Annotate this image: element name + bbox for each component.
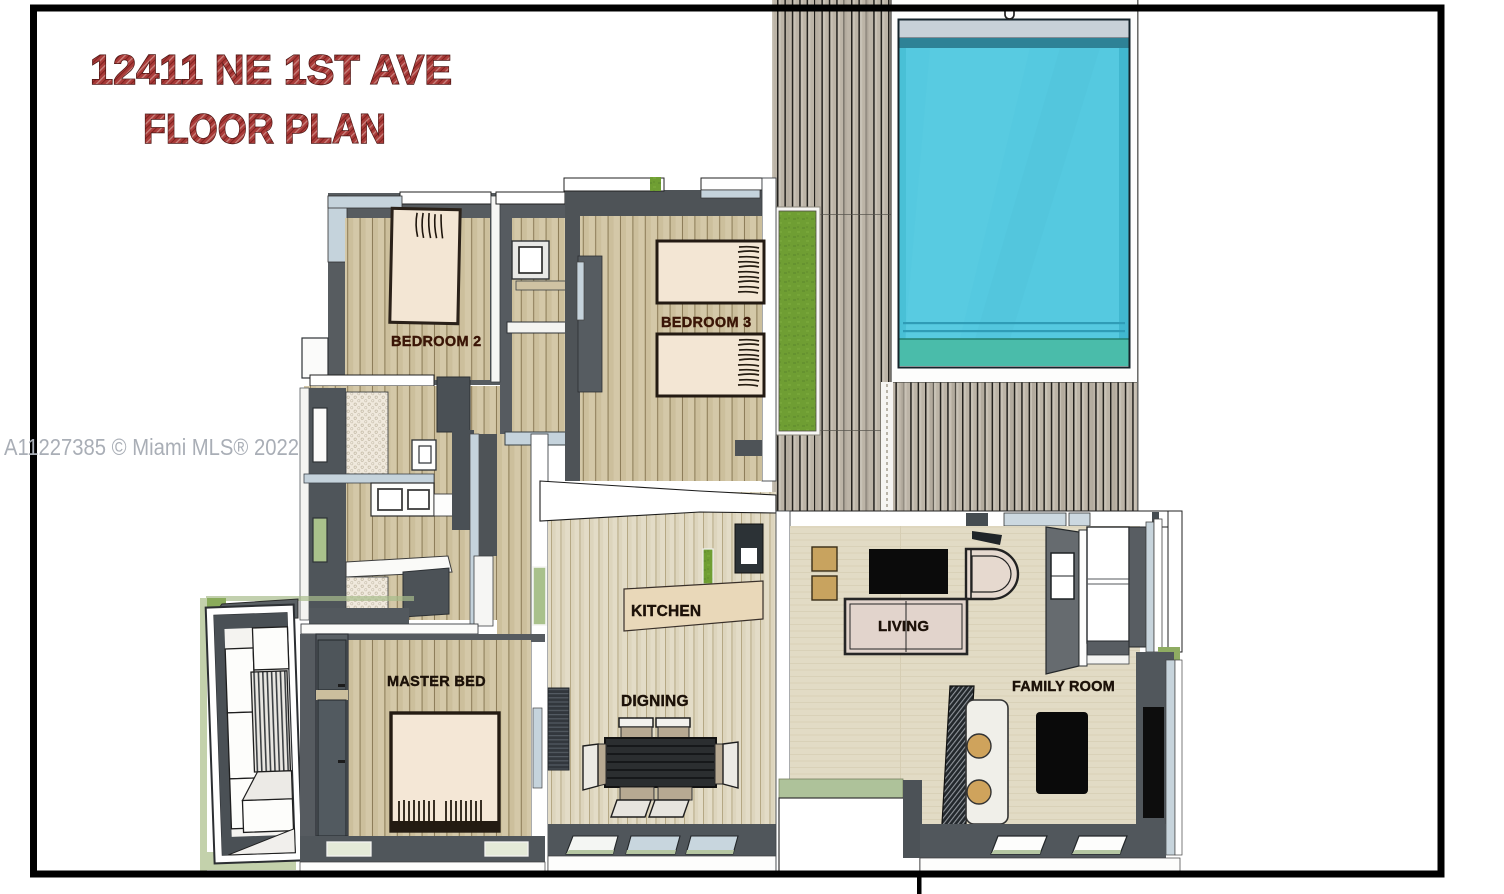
svg-text:KITCHEN: KITCHEN — [631, 603, 701, 620]
svg-text:MASTER BED: MASTER BED — [387, 674, 486, 690]
svg-text:A11227385 © Miami MLS® 2022: A11227385 © Miami MLS® 2022 — [4, 434, 299, 460]
svg-text:LIVING: LIVING — [878, 618, 929, 635]
svg-text:FAMILY ROOM: FAMILY ROOM — [1012, 679, 1115, 695]
svg-text:DIGNING: DIGNING — [621, 693, 689, 710]
svg-text:12411 NE 1ST AVE: 12411 NE 1ST AVE — [90, 46, 452, 93]
svg-text:BEDROOM 2: BEDROOM 2 — [391, 334, 482, 350]
svg-text:BEDROOM 3: BEDROOM 3 — [661, 315, 752, 331]
svg-text:FLOOR PLAN: FLOOR PLAN — [143, 105, 386, 152]
